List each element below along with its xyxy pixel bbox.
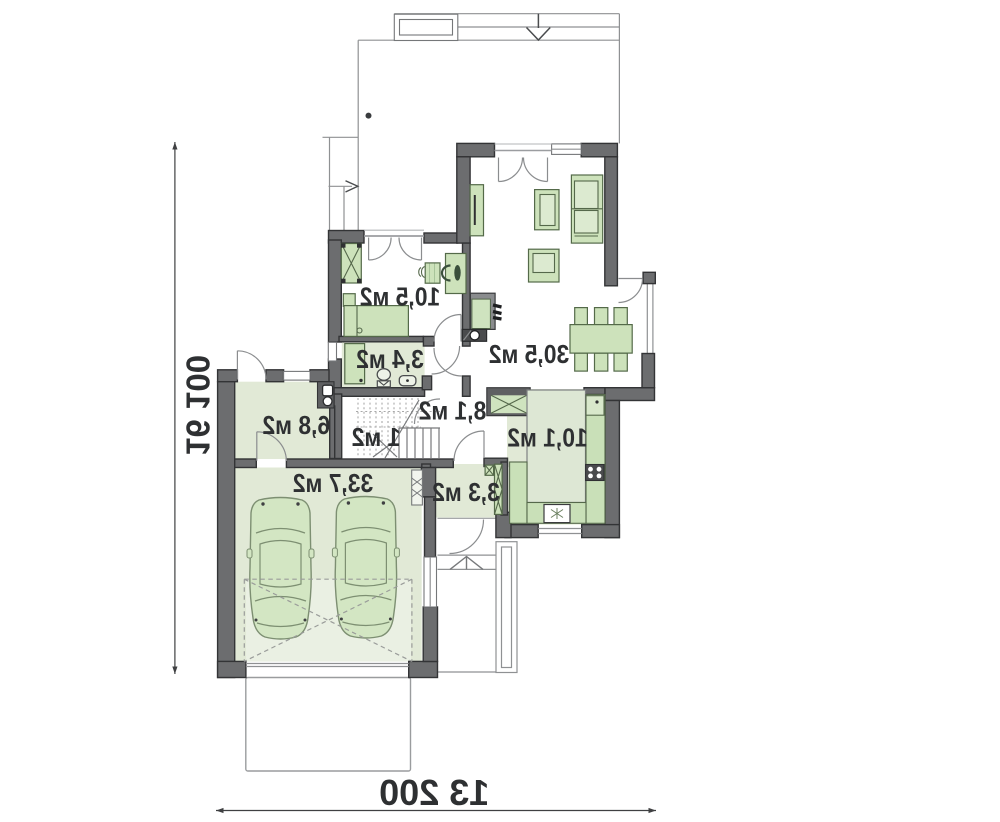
svg-text:3,4 м2: 3,4 м2 bbox=[356, 346, 424, 375]
svg-text:16 100: 16 100 bbox=[180, 355, 217, 456]
svg-text:8,1 м2: 8,1 м2 bbox=[419, 397, 487, 426]
svg-text:30,5 м2: 30,5 м2 bbox=[489, 341, 569, 370]
svg-text:1 м2: 1 м2 bbox=[352, 424, 401, 453]
svg-text:10,1 м2: 10,1 м2 bbox=[507, 424, 587, 453]
svg-text:3,3 м2: 3,3 м2 bbox=[432, 479, 500, 508]
svg-text:6,8 м2: 6,8 м2 bbox=[262, 412, 330, 441]
svg-text:10,5 м2: 10,5 м2 bbox=[360, 283, 440, 312]
svg-text:33,7 м2: 33,7 м2 bbox=[293, 470, 373, 499]
svg-text:13 200: 13 200 bbox=[379, 772, 489, 813]
